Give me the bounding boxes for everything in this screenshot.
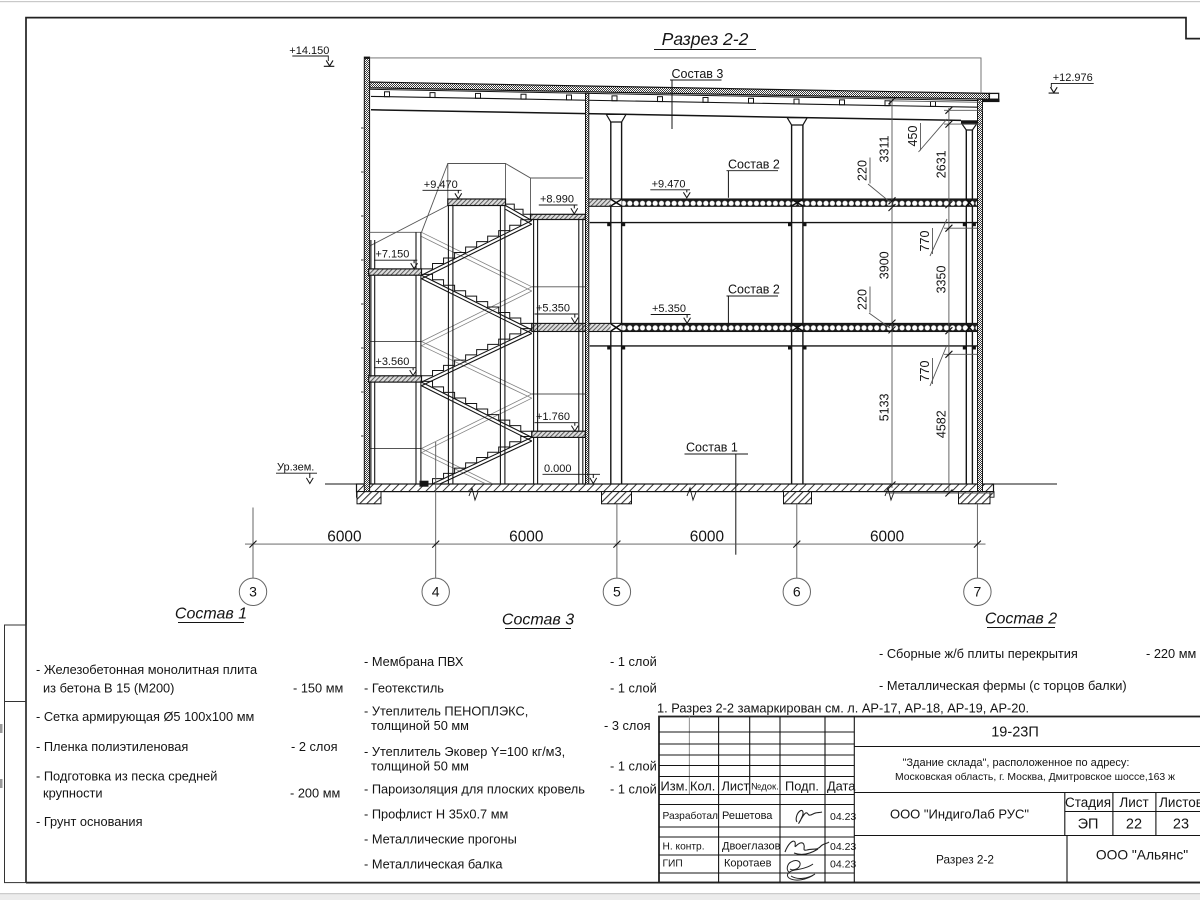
svg-text:крупности: крупности [43,786,103,801]
svg-text:Кол.: Кол. [690,779,715,794]
svg-text:- Грунт основания: - Грунт основания [36,814,143,829]
svg-text:+9.470: +9.470 [424,179,458,191]
svg-text:- 200 мм: - 200 мм [290,786,340,801]
svg-text:Коротаев: Коротаев [724,858,772,870]
svg-text:Состав 2: Состав 2 [728,157,780,171]
svg-text:ООО "ИндигоЛаб РУС": ООО "ИндигоЛаб РУС" [890,807,1029,822]
svg-text:Состав 1: Состав 1 [686,441,738,455]
svg-text:Лист: Лист [1119,795,1148,810]
svg-text:- Металлическая фермы (с торцо: - Металлическая фермы (с торцов балки) [879,678,1127,693]
svg-text:- Геотекстиль: - Геотекстиль [364,681,444,696]
svg-text:22: 22 [1126,817,1142,833]
svg-text:- 3 слоя: - 3 слоя [604,718,651,733]
svg-text:Двоеглазов: Двоеглазов [722,841,781,853]
svg-text:Изм.: Изм. [661,779,688,794]
svg-text:- Мембрана ПВХ: - Мембрана ПВХ [364,654,464,669]
svg-text:Состав 3: Состав 3 [502,612,574,629]
svg-text:3: 3 [249,584,257,600]
svg-text:6000: 6000 [509,528,543,545]
svg-text:толщиной 50 мм: толщиной 50 мм [371,759,469,774]
svg-text:толщиной 50 мм: толщиной 50 мм [371,718,469,733]
svg-text:Ур.зем.: Ур.зем. [277,462,314,474]
svg-text:- Металлическая балка: - Металлическая балка [364,857,503,872]
svg-text:0.000: 0.000 [544,463,572,475]
svg-text:- Сетка армирующая Ø5 100х100: - Сетка армирующая Ø5 100х100 мм [36,709,254,724]
svg-text:+5.350: +5.350 [652,303,686,315]
svg-text:220: 220 [856,160,870,181]
svg-text:Состав 2: Состав 2 [728,283,780,297]
svg-text:+3.560: +3.560 [375,356,409,368]
svg-text:- 1 слой: - 1 слой [610,759,657,774]
svg-text:04.23: 04.23 [830,811,856,823]
svg-text:- Сборные ж/б плиты перекрытия: - Сборные ж/б плиты перекрытия [879,646,1078,661]
svg-text:1. Разрез 2-2 замаркирован см.: 1. Разрез 2-2 замаркирован см. л. АР-17,… [657,701,1029,716]
svg-text:- 220 мм: - 220 мм [1146,646,1196,661]
svg-text:Н. контр.: Н. контр. [663,842,705,853]
svg-text:04.23: 04.23 [830,841,856,853]
svg-text:- 150 мм: - 150 мм [293,681,343,696]
svg-text:7: 7 [974,584,982,600]
svg-text:- Пароизоляция для плоских кро: - Пароизоляция для плоских кровель [364,782,585,797]
svg-text:+9.470: +9.470 [652,179,686,191]
svg-text:из бетона В 15 (М200): из бетона В 15 (М200) [43,681,174,696]
svg-text:Московская область, г. Москва,: Московская область, г. Москва, Дмитровск… [895,771,1175,783]
svg-text:+8.990: +8.990 [540,194,574,206]
svg-text:+14.150: +14.150 [289,45,329,57]
svg-text:Лист: Лист [722,779,750,794]
svg-text:ЭП: ЭП [1078,817,1099,833]
svg-text:Разработал: Разработал [663,810,719,822]
svg-text:+7.150: +7.150 [375,249,409,261]
svg-text:ООО "Альянс": ООО "Альянс" [1096,848,1188,863]
svg-text:ГИП: ГИП [663,859,683,870]
svg-text:Листов: Листов [1159,795,1200,810]
svg-text:Решетова: Решетова [722,810,773,822]
svg-text:4: 4 [432,584,440,600]
svg-text:- Пленка полиэтиленовая: - Пленка полиэтиленовая [36,739,188,754]
svg-text:3350: 3350 [934,266,948,294]
svg-text:450: 450 [906,126,920,147]
svg-text:- 1 слой: - 1 слой [610,681,657,696]
svg-text:Стадия: Стадия [1065,795,1111,810]
svg-text:"Здание склада", расположенное: "Здание склада", расположенное по адресу… [903,757,1130,769]
svg-text:19-23П: 19-23П [991,725,1039,741]
svg-text:04.23: 04.23 [830,859,856,871]
svg-text:3311: 3311 [878,136,892,163]
svg-text:- Утеплитель Эковер Y=100 кг/м: - Утеплитель Эковер Y=100 кг/м3, [364,744,565,759]
svg-text:5: 5 [613,584,621,600]
svg-text:6000: 6000 [327,528,361,545]
svg-text:23: 23 [1173,817,1189,833]
svg-text:6: 6 [793,584,801,600]
svg-text:- 2 слоя: - 2 слоя [291,739,338,754]
svg-text:6000: 6000 [690,528,724,545]
svg-text:+1.760: +1.760 [536,411,570,423]
svg-text:5133: 5133 [878,393,892,421]
svg-text:- Железобетонная монолитная п: - Железобетонная монолитная плита [36,662,258,677]
svg-text:+5.350: +5.350 [536,303,570,315]
svg-text:- 1 слой: - 1 слой [610,782,657,797]
svg-text:- 1 слой: - 1 слой [610,654,657,669]
svg-text:220: 220 [856,289,870,310]
svg-text:Разрез 2-2: Разрез 2-2 [936,853,994,867]
svg-text:770: 770 [918,231,932,252]
svg-text:Дата: Дата [827,779,856,794]
svg-text:Подп.: Подп. [785,779,819,794]
svg-text:Разрез 2-2: Разрез 2-2 [662,29,749,49]
svg-text:- Металлические прогоны: - Металлические прогоны [364,832,517,847]
svg-text:+12.976: +12.976 [1053,72,1093,84]
svg-text:770: 770 [918,361,932,382]
svg-text:- Утеплитель ПЕНОПЛЭКС,: - Утеплитель ПЕНОПЛЭКС, [364,704,528,719]
svg-text:Состав 3: Состав 3 [672,67,724,81]
svg-text:2631: 2631 [934,150,948,178]
svg-text:Состав 1: Состав 1 [175,606,247,623]
svg-text:3900: 3900 [878,251,892,279]
svg-text:- Профлист Н 35х0.7 мм: - Профлист Н 35х0.7 мм [364,807,508,822]
svg-text:4582: 4582 [934,410,948,438]
svg-text:6000: 6000 [870,528,904,545]
svg-text:Состав 2: Состав 2 [985,611,1057,628]
svg-text:- Подготовка из песка средней: - Подготовка из песка средней [36,769,217,784]
svg-text:№док.: №док. [751,782,779,793]
